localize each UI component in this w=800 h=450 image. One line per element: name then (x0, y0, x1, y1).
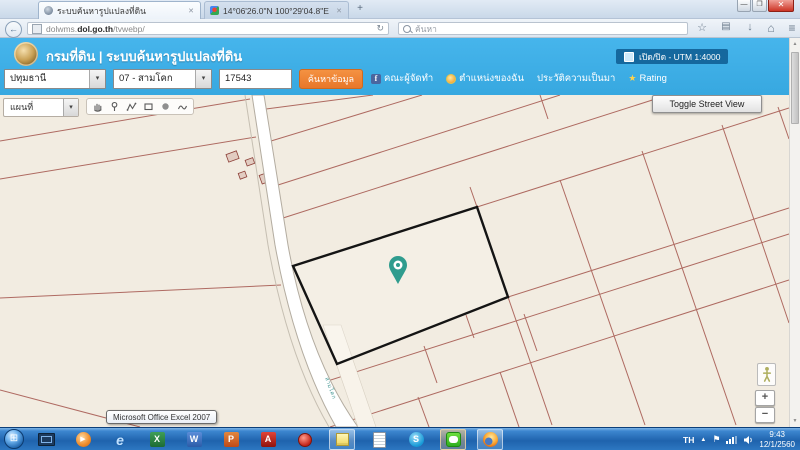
taskbar-firefox-button[interactable] (477, 429, 503, 450)
district-value: 07 - สามโคก (119, 73, 173, 84)
line-icon (446, 432, 461, 447)
chevron-down-icon: ▾ (63, 99, 78, 116)
new-tab-button[interactable]: + (352, 3, 368, 16)
menu-label: ประวัติความเป็นมา (537, 71, 615, 86)
map-zoom-out-button[interactable]: − (755, 407, 775, 423)
scroll-down-icon[interactable]: ▼ (790, 415, 800, 427)
bookmarks-menu-icon[interactable]: ▤ (718, 21, 734, 32)
dol-favicon-icon (44, 6, 53, 15)
taskbar-clock[interactable]: 9:43 12/1/2560 (759, 430, 795, 449)
powerpoint-icon: P (224, 432, 239, 447)
dol-logo (14, 42, 38, 66)
search-parcel-button[interactable]: ค้นหาข้อมูล (299, 69, 363, 89)
window-close-button[interactable]: ✕ (768, 0, 794, 12)
window-maximize-button[interactable]: ❐ (752, 0, 767, 12)
browser-navbar: ← dolwms. dol.go.th /tvwebp/ ↻ ค้นหา ☆ ▤… (0, 19, 800, 38)
back-button[interactable]: ← (5, 21, 22, 38)
red-app-icon (298, 433, 312, 447)
taskbar-icons: ▶ e X W P A S (33, 429, 503, 450)
page-title: กรมที่ดิน | ระบบค้นหารูปแปลงที่ดิน (46, 46, 242, 67)
home-icon[interactable]: ⌂ (763, 21, 779, 35)
selected-parcel-outline[interactable] (293, 207, 508, 364)
gmaps-favicon-icon (210, 6, 219, 15)
tab-google-maps-coords[interactable]: 14°06'26.0"N 100°29'04.8"E ... ✕ (204, 1, 349, 19)
chevron-down-icon: ▾ (89, 70, 105, 88)
scrollbar-thumb[interactable] (791, 52, 799, 124)
utm-badge-label: เปิด/ปิด - UTM 1:4000 (639, 50, 720, 64)
reload-icon[interactable]: ↻ (376, 23, 384, 34)
facebook-icon: f (371, 74, 381, 84)
window-minimize-button[interactable]: — (737, 0, 751, 12)
tab-title: ระบบค้นหารูปแปลงที่ดิน (57, 4, 183, 18)
checkbox-icon (624, 52, 634, 62)
circle-tool-icon[interactable] (160, 101, 171, 112)
taskbar-red-app-button[interactable] (292, 429, 318, 450)
volume-icon[interactable] (743, 435, 753, 445)
my-location-icon (446, 74, 456, 84)
district-select[interactable]: 07 - สามโคก ▾ (113, 69, 212, 89)
map-zoom-in-button[interactable]: + (755, 390, 775, 406)
map-layer-select[interactable]: แผนที่ ▾ (3, 98, 79, 117)
menu-label: Rating (639, 73, 666, 84)
taskbar-adobe-reader-button[interactable]: A (255, 429, 281, 450)
marker-tool-icon[interactable] (109, 101, 120, 112)
taskbar-word-button[interactable]: W (181, 429, 207, 450)
taskbar-internet-explorer-button[interactable]: e (107, 429, 133, 450)
taskbar-excel-button[interactable]: X (144, 429, 170, 450)
menu-item-history[interactable]: ประวัติความเป็นมา (537, 71, 615, 86)
url-domain: dol.go.th (77, 24, 113, 34)
chevron-down-icon: ▾ (195, 70, 211, 88)
measure-line-icon[interactable] (126, 101, 137, 112)
url-subdomain: dolwms. (46, 24, 77, 34)
url-bar[interactable]: dolwms. dol.go.th /tvwebp/ ↻ (27, 22, 389, 35)
sticky-notes-icon (336, 433, 349, 446)
vertical-scrollbar[interactable]: ▲ ▼ (789, 38, 800, 427)
menu-label: ตำแหน่งของฉัน (459, 71, 524, 86)
tab-land-parcel-system[interactable]: ระบบค้นหารูปแปลงที่ดิน ✕ (38, 1, 201, 19)
document-icon (373, 432, 386, 448)
taskbar: ⊞ ▶ e X W P A S TH ▲ ⚑ (0, 427, 800, 450)
taskbar-tooltip: Microsoft Office Excel 2007 (106, 410, 217, 424)
app-header: กรมที่ดิน | ระบบค้นหารูปแปลงที่ดิน เปิด/… (0, 38, 789, 95)
tab-close-icon[interactable]: ✕ (187, 7, 195, 15)
hamburger-menu-icon[interactable]: ≡ (784, 21, 800, 35)
browser-tabbar: ระบบค้นหารูปแปลงที่ดิน ✕ 14°06'26.0"N 10… (0, 0, 800, 19)
internet-explorer-icon: e (116, 432, 124, 448)
tray-expand-icon[interactable]: ▲ (700, 437, 706, 443)
pan-hand-icon[interactable] (92, 101, 103, 112)
downloads-icon[interactable]: ↓ (742, 21, 758, 33)
tab-title: 14°06'26.0"N 100°29'04.8"E ... (223, 6, 331, 16)
freehand-tool-icon[interactable] (177, 101, 188, 112)
start-button[interactable]: ⊞ (4, 429, 24, 449)
menu-item-rating[interactable]: ★ Rating (628, 73, 667, 84)
bookmark-star-icon[interactable]: ☆ (694, 21, 710, 34)
url-path: /tvwebp/ (113, 24, 376, 34)
rating-icon: ★ (628, 73, 636, 84)
network-signal-icon[interactable] (726, 436, 737, 444)
search-icon (403, 25, 411, 33)
taskbar-sticky-notes-button[interactable] (329, 429, 355, 450)
skype-icon: S (409, 432, 424, 447)
menu-item-credits[interactable]: f คณะผู้จัดทำ (371, 71, 433, 86)
map-toolbar (86, 98, 194, 115)
province-select[interactable]: ปทุมธานี ▾ (4, 69, 106, 89)
browser-search-field[interactable]: ค้นหา (398, 22, 688, 35)
firefox-icon (483, 432, 498, 447)
pegman-icon[interactable] (757, 363, 776, 386)
language-indicator[interactable]: TH (683, 435, 694, 445)
taskbar-remote-desktop-button[interactable] (33, 429, 59, 450)
screen: ระบบค้นหารูปแปลงที่ดิน ✕ 14°06'26.0"N 10… (0, 0, 800, 450)
taskbar-line-button[interactable] (440, 429, 466, 450)
header-menu: f คณะผู้จัดทำ ตำแหน่งของฉัน ประวัติความเ… (371, 71, 667, 86)
tab-close-icon[interactable]: ✕ (335, 7, 343, 15)
taskbar-document-app-button[interactable] (366, 429, 392, 450)
excel-icon: X (150, 432, 165, 447)
utm-scale-toggle[interactable]: เปิด/ปิด - UTM 1:4000 (616, 49, 728, 64)
taskbar-media-player-button[interactable]: ▶ (70, 429, 96, 450)
parcel-number-input[interactable]: 17543 (219, 69, 292, 89)
menu-label: คณะผู้จัดทำ (384, 71, 433, 86)
remote-desktop-icon (38, 433, 55, 446)
menu-item-my-location[interactable]: ตำแหน่งของฉัน (446, 71, 524, 86)
action-center-flag-icon[interactable]: ⚑ (712, 434, 720, 445)
clock-date: 12/1/2560 (759, 440, 795, 450)
toggle-street-view-button[interactable]: Toggle Street View (652, 95, 762, 113)
layer-select-value: แผนที่ (10, 102, 33, 112)
rectangle-tool-icon[interactable] (143, 101, 154, 112)
system-tray: TH ▲ ⚑ 9:43 12/1/2560 (683, 429, 795, 450)
adobe-reader-icon: A (261, 432, 276, 447)
taskbar-powerpoint-button[interactable]: P (218, 429, 244, 450)
word-icon: W (187, 432, 202, 447)
scroll-up-icon[interactable]: ▲ (790, 38, 800, 50)
clock-time: 9:43 (759, 430, 795, 440)
map-base-layer: สามโคก (0, 95, 789, 427)
taskbar-skype-button[interactable]: S (403, 429, 429, 450)
page-icon (32, 24, 42, 34)
search-placeholder: ค้นหา (415, 22, 437, 36)
map-canvas[interactable]: สามโคก แผนที่ ▾ (0, 95, 789, 427)
province-value: ปทุมธานี (10, 73, 46, 84)
media-player-icon: ▶ (76, 432, 91, 447)
